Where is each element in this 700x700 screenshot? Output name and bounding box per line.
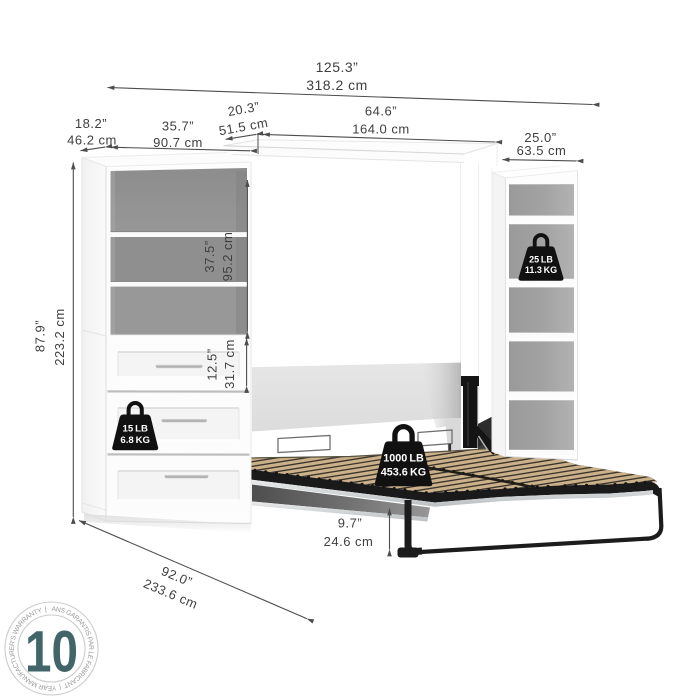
svg-text:15 LB: 15 LB xyxy=(123,424,148,435)
svg-text:1000 LB: 1000 LB xyxy=(383,452,424,464)
svg-text:9.7”: 9.7” xyxy=(338,516,362,531)
svg-text:6.8 KG: 6.8 KG xyxy=(120,435,150,446)
svg-text:46.2 cm: 46.2 cm xyxy=(67,133,117,148)
svg-text:24.6 cm: 24.6 cm xyxy=(324,534,374,549)
svg-text:90.7 cm: 90.7 cm xyxy=(153,135,203,150)
svg-text:95.2 cm: 95.2 cm xyxy=(220,232,235,282)
svg-text:35.7”: 35.7” xyxy=(162,119,194,134)
svg-text:12.5”: 12.5” xyxy=(205,348,220,380)
svg-text:18.2”: 18.2” xyxy=(75,116,107,131)
svg-text:25 LB: 25 LB xyxy=(529,255,553,265)
svg-text:64.6”: 64.6” xyxy=(365,104,397,119)
svg-text:318.2 cm: 318.2 cm xyxy=(306,77,368,93)
svg-text:37.5”: 37.5” xyxy=(202,240,217,272)
svg-text:223.2 cm: 223.2 cm xyxy=(52,308,67,365)
svg-text:10: 10 xyxy=(25,620,78,685)
svg-text:63.5 cm: 63.5 cm xyxy=(517,143,567,158)
svg-text:87.9”: 87.9” xyxy=(33,320,48,352)
svg-text:453.6 KG: 453.6 KG xyxy=(381,466,426,478)
svg-text:125.3”: 125.3” xyxy=(316,59,359,75)
svg-text:11.3 KG: 11.3 KG xyxy=(525,265,557,275)
svg-text:31.7 cm: 31.7 cm xyxy=(222,339,237,389)
svg-text:164.0 cm: 164.0 cm xyxy=(352,122,409,137)
